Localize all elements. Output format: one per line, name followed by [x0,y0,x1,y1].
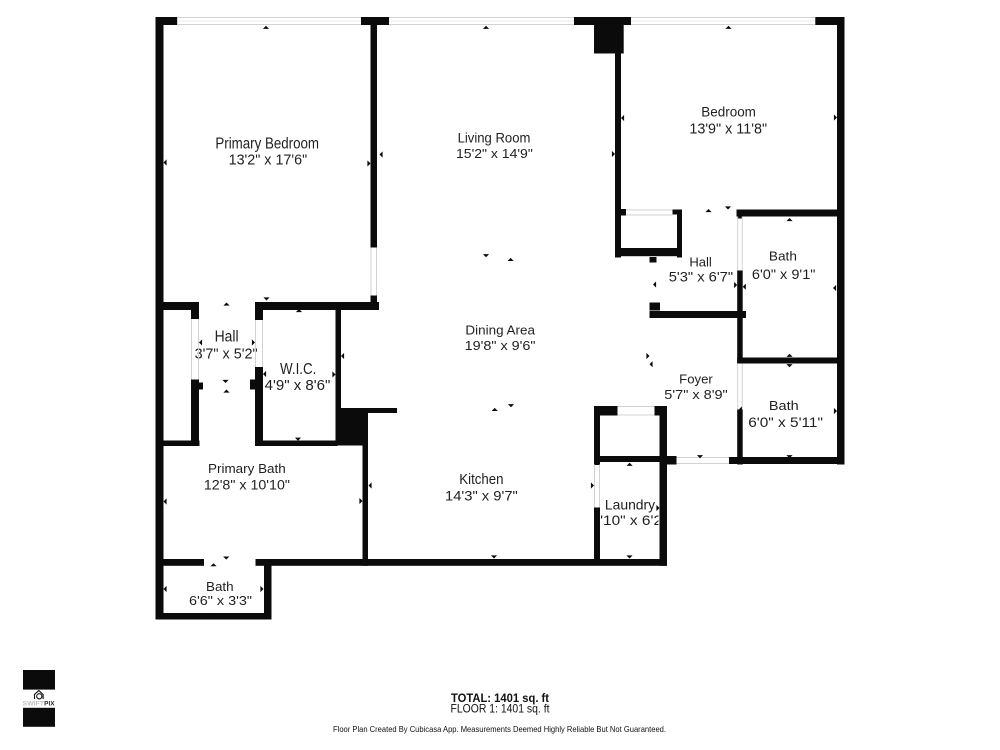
svg-text:Kitchen: Kitchen [459,472,503,488]
svg-text:Laundry: Laundry [605,496,655,512]
svg-text:Primary Bath: Primary Bath [208,461,286,476]
svg-text:5'7" x 8'9": 5'7" x 8'9" [664,387,728,402]
svg-text:Bedroom: Bedroom [701,105,756,120]
svg-text:6'0" x 9'1": 6'0" x 9'1" [752,267,816,282]
svg-text:PIX: PIX [44,701,55,708]
svg-text:Floor Plan Created By Cubicasa: Floor Plan Created By Cubicasa App. Meas… [333,724,666,734]
svg-text:4'9" x 8'6": 4'9" x 8'6" [265,378,331,394]
svg-text:5'3" x 6'7": 5'3" x 6'7" [669,269,733,284]
svg-text:14'3" x 9'7": 14'3" x 9'7" [445,487,518,503]
svg-text:SWIFT: SWIFT [23,701,45,708]
svg-text:Foyer: Foyer [679,372,713,387]
svg-text:Bath: Bath [769,398,799,413]
svg-text:3'7" x 5'2": 3'7" x 5'2" [195,347,258,363]
svg-text:6'6" x 3'3": 6'6" x 3'3" [189,593,252,608]
svg-text:Primary Bedroom: Primary Bedroom [215,136,319,153]
svg-text:Dining Area: Dining Area [465,323,535,338]
svg-text:12'8" x 10'10": 12'8" x 10'10" [204,476,290,492]
svg-text:Living Room: Living Room [458,130,531,146]
svg-text:Hall: Hall [215,329,239,346]
svg-text:13'9" x 11'8": 13'9" x 11'8" [689,122,767,138]
svg-text:W.I.C.: W.I.C. [280,361,316,378]
svg-text:Bath: Bath [206,579,234,594]
svg-text:19'8" x 9'6": 19'8" x 9'6" [465,338,536,353]
svg-text:Bath: Bath [769,248,797,263]
svg-text:FLOOR 1: 1401 sq. ft: FLOOR 1: 1401 sq. ft [451,703,551,716]
svg-text:Hall: Hall [689,254,712,269]
svg-text:6'0" x 5'11": 6'0" x 5'11" [748,415,823,430]
svg-text:15'2" x 14'9": 15'2" x 14'9" [456,146,533,161]
svg-text:13'2" x 17'6": 13'2" x 17'6" [229,152,308,168]
svg-text:5'10" x 6'2": 5'10" x 6'2" [592,512,668,528]
